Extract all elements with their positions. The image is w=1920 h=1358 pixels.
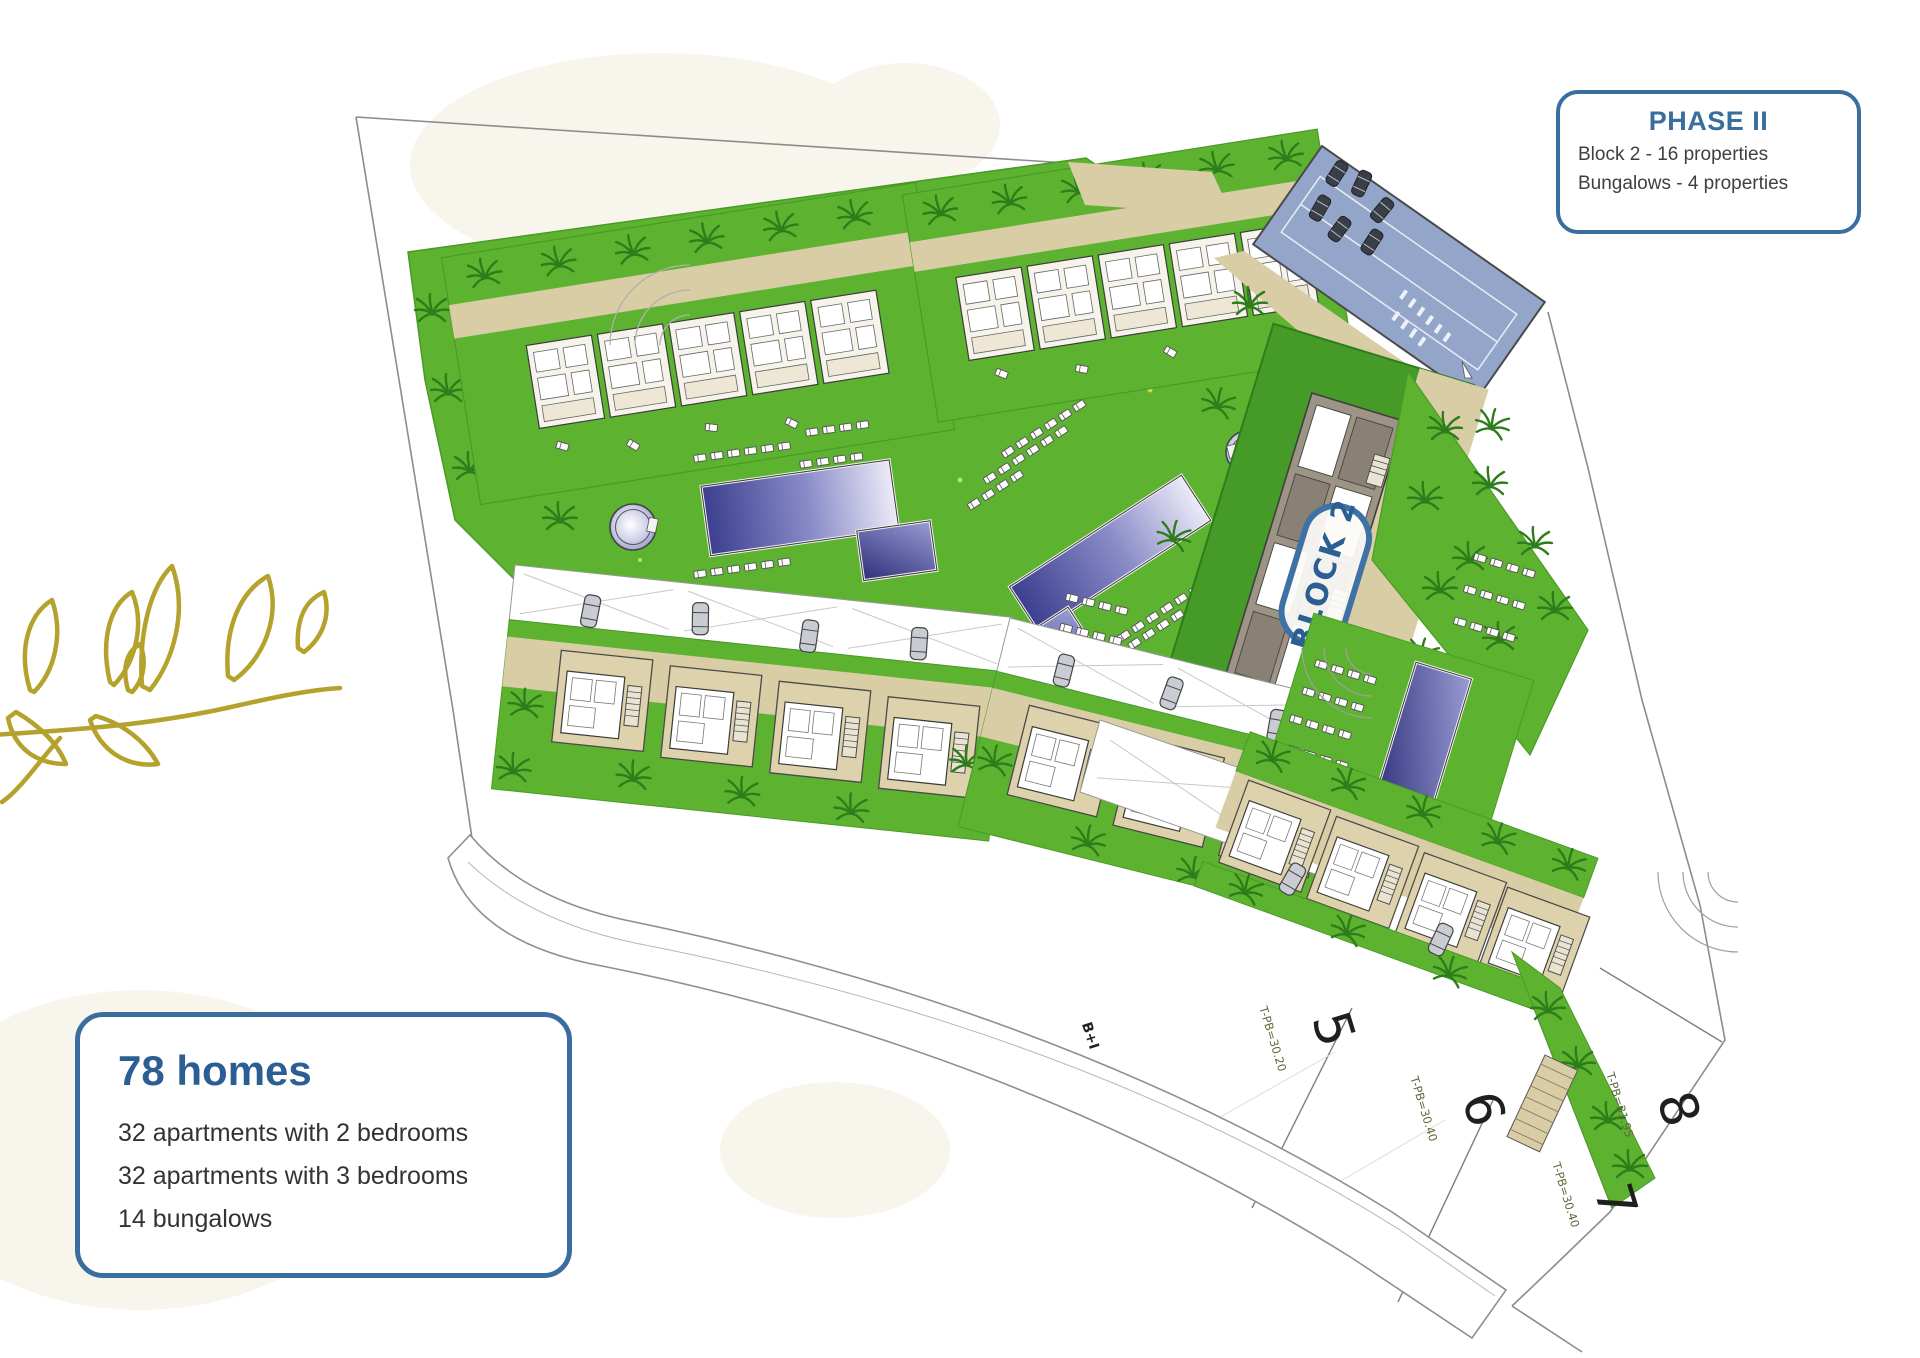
plot-number-6: 6 (1449, 1085, 1516, 1134)
phase-info-box: PHASE II Block 2 - 16 properties Bungalo… (1556, 90, 1861, 234)
homes-box-line-1: 32 apartments with 2 bedrooms (118, 1119, 529, 1148)
phase-box-title: PHASE II (1578, 106, 1839, 137)
homes-box-line-3: 14 bungalows (118, 1205, 529, 1234)
homes-info-box: 78 homes 32 apartments with 2 bedrooms 3… (75, 1012, 572, 1278)
page: BLOCK 2 (0, 0, 1920, 1358)
plot-number-8: 8 (1644, 1085, 1711, 1134)
homes-box-line-2: 32 apartments with 3 bedrooms (118, 1162, 529, 1191)
olive-branch-decoration (0, 566, 340, 802)
phase-box-line-1: Block 2 - 16 properties (1578, 144, 1839, 166)
homes-box-title: 78 homes (118, 1047, 529, 1095)
level-label-plot7: T-PB=30.40 (1549, 1160, 1582, 1230)
plot-divider-lines (1252, 952, 1722, 1302)
phase-box-line-2: Bungalows - 4 properties (1578, 173, 1839, 195)
road-label: B+I (1078, 1020, 1102, 1051)
plot-number-5: 5 (1299, 1005, 1366, 1054)
plot-number-7: 7 (1581, 1177, 1648, 1226)
ramp-hatch (1507, 1055, 1578, 1152)
level-label-plot5: T-PB=30.20 (1256, 1004, 1289, 1074)
